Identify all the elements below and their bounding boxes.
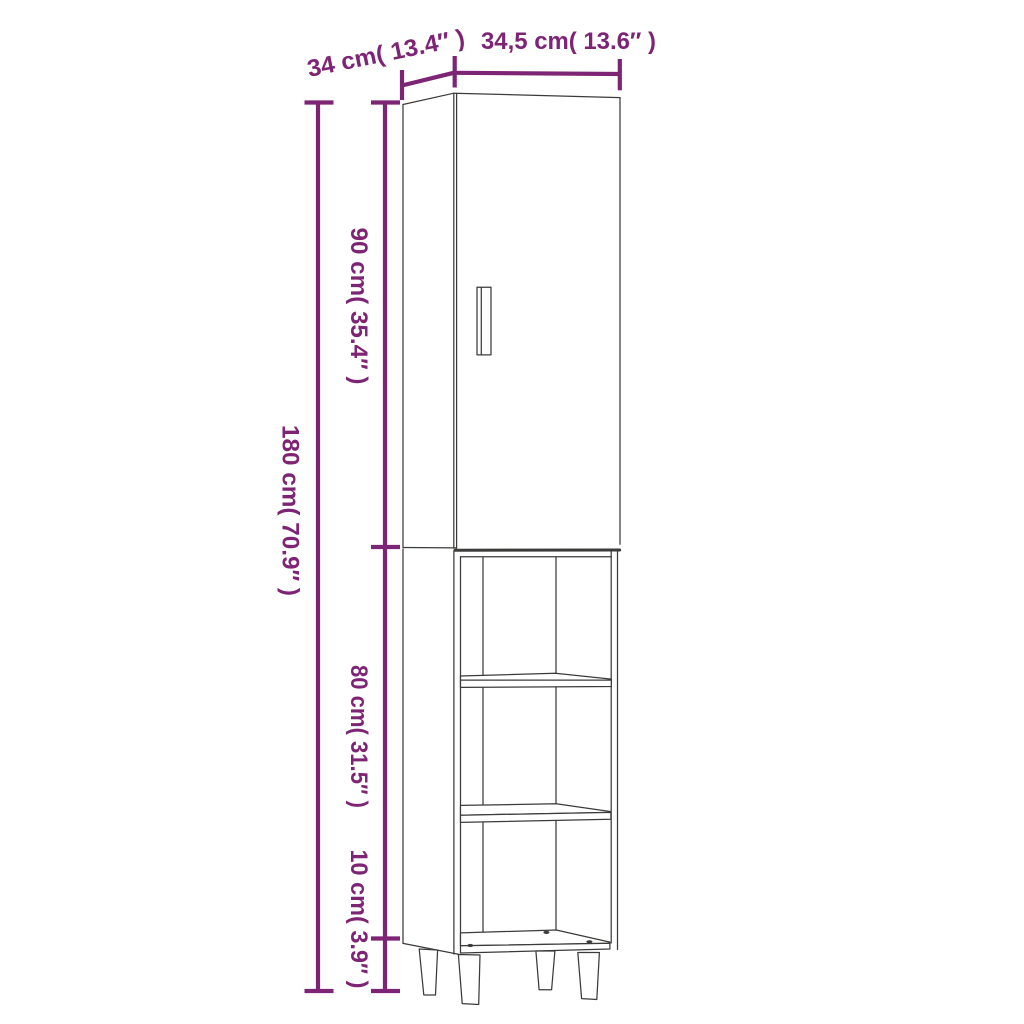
svg-text:10 cm( 3.9″ ): 10 cm( 3.9″ ) <box>345 850 372 989</box>
svg-text:34,5 cm( 13.6″ ): 34,5 cm( 13.6″ ) <box>481 28 656 55</box>
svg-text:80 cm( 31.5″ ): 80 cm( 31.5″ ) <box>345 665 372 808</box>
svg-text:180 cm( 70.9″ ): 180 cm( 70.9″ ) <box>277 425 304 596</box>
svg-text:90 cm( 35.4″ ): 90 cm( 35.4″ ) <box>345 228 372 385</box>
